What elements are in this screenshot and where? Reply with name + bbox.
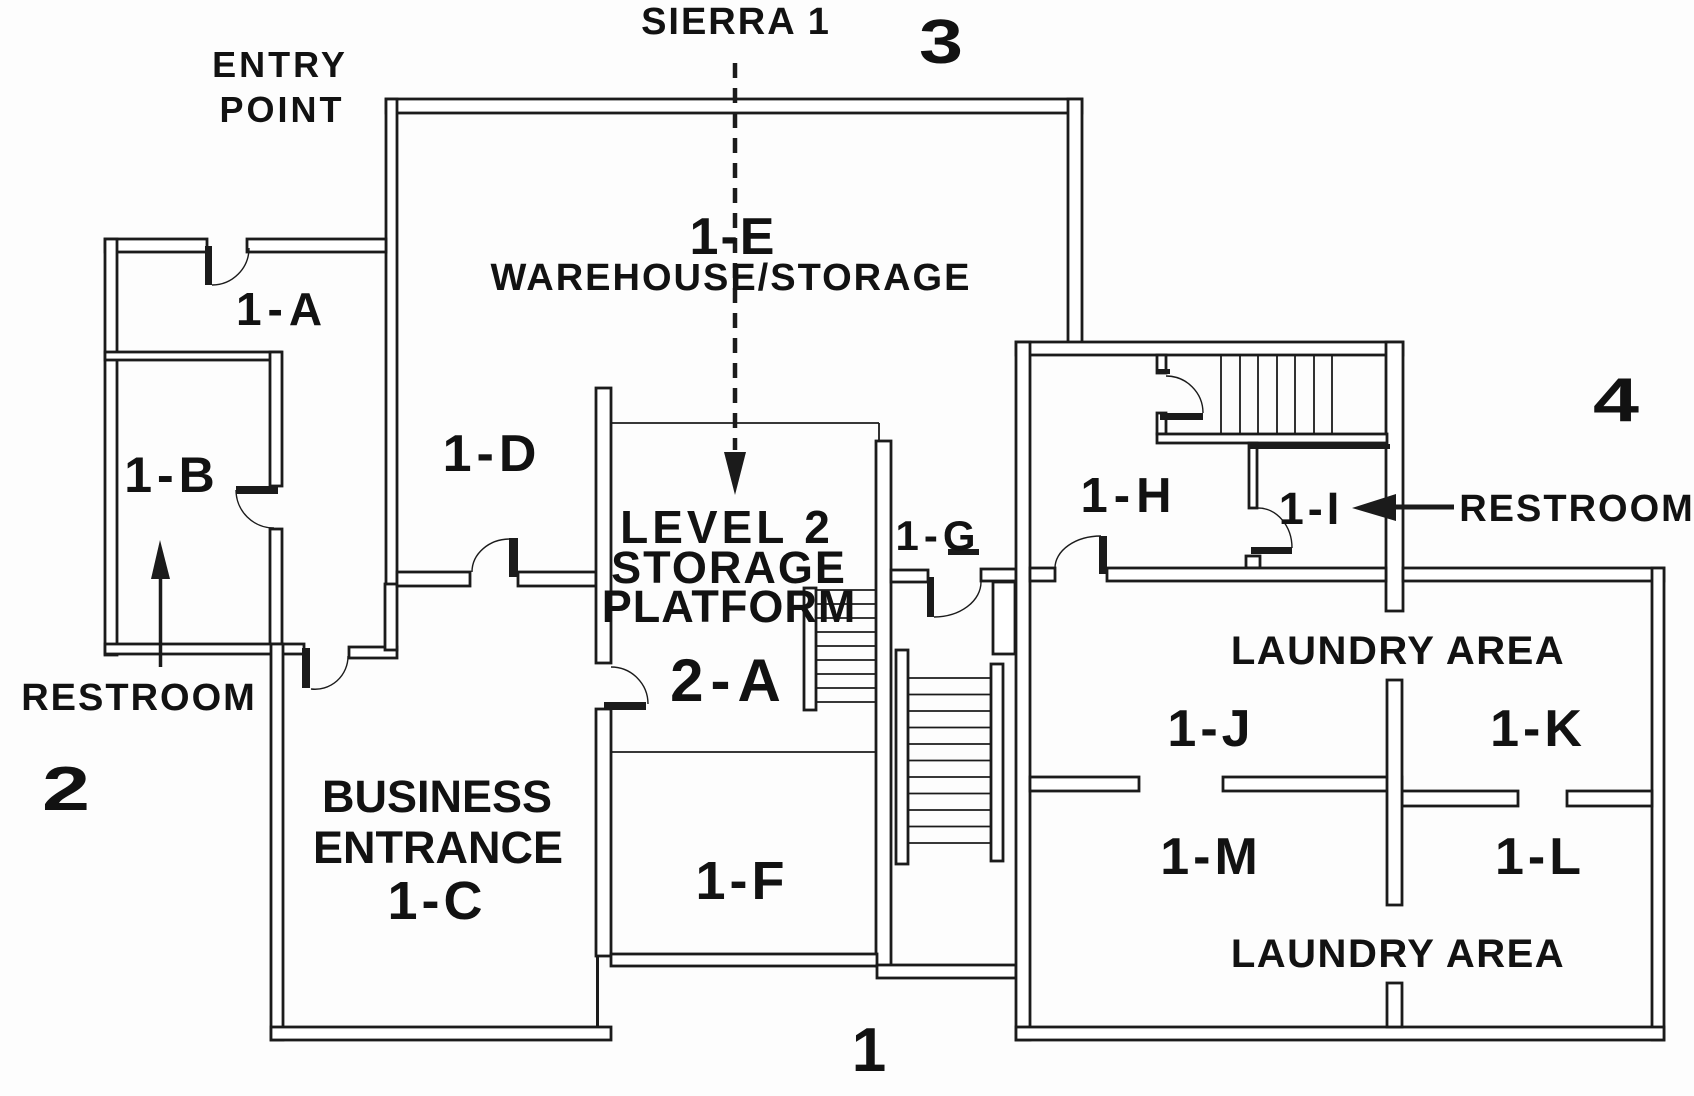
svg-text:1-D: 1-D xyxy=(443,425,542,483)
svg-text:1: 1 xyxy=(852,1016,886,1085)
svg-text:1-M: 1-M xyxy=(1160,828,1262,886)
svg-text:1-A: 1-A xyxy=(236,283,328,335)
svg-text:1-G: 1-G xyxy=(895,512,980,559)
svg-text:ENTRANCE: ENTRANCE xyxy=(313,822,563,873)
svg-text:LAUNDRY AREA: LAUNDRY AREA xyxy=(1231,932,1565,976)
svg-text:RESTROOM: RESTROOM xyxy=(1459,488,1694,530)
svg-text:1-K: 1-K xyxy=(1490,700,1586,758)
svg-text:4: 4 xyxy=(1593,366,1640,435)
svg-text:3: 3 xyxy=(919,8,963,77)
svg-text:SIERRA 1: SIERRA 1 xyxy=(641,1,831,43)
svg-text:LAUNDRY AREA: LAUNDRY AREA xyxy=(1231,629,1565,673)
svg-text:WAREHOUSE/STORAGE: WAREHOUSE/STORAGE xyxy=(491,257,972,299)
svg-text:1-L: 1-L xyxy=(1495,828,1585,886)
svg-text:1-B: 1-B xyxy=(124,447,220,503)
svg-text:1-H: 1-H xyxy=(1081,469,1178,523)
svg-text:ENTRY: ENTRY xyxy=(212,44,348,85)
svg-text:1-F: 1-F xyxy=(696,851,789,911)
svg-text:RESTROOM: RESTROOM xyxy=(21,677,257,719)
svg-text:1-I: 1-I xyxy=(1279,483,1344,534)
svg-text:2: 2 xyxy=(42,755,90,824)
svg-text:1-J: 1-J xyxy=(1167,700,1254,758)
svg-text:2-A: 2-A xyxy=(670,647,788,714)
svg-text:BUSINESS: BUSINESS xyxy=(322,771,552,822)
svg-text:POINT: POINT xyxy=(219,89,344,130)
svg-text:PLATFORM: PLATFORM xyxy=(602,581,857,632)
svg-text:1-C: 1-C xyxy=(387,871,486,931)
